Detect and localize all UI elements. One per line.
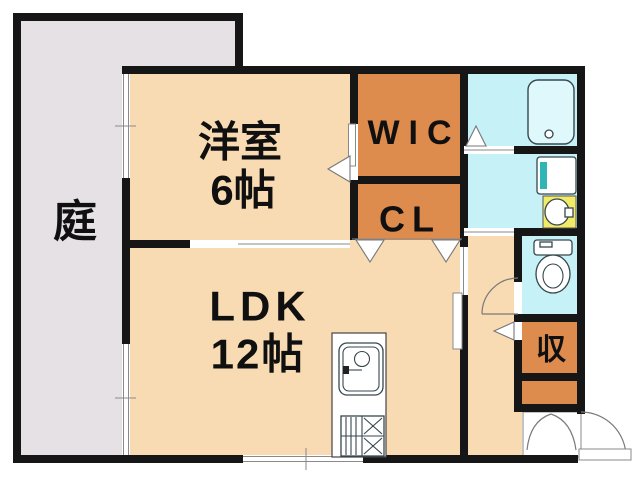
wall-bedroom-wic-upper — [350, 66, 358, 124]
wall-bedroom-ldk — [122, 240, 190, 248]
kitchen-sink-icon — [339, 343, 383, 395]
wall-washroom-bottom — [514, 228, 585, 236]
storage2-floor — [522, 381, 581, 404]
hallway — [464, 236, 522, 459]
ldk-size-label: 12帖 — [211, 331, 306, 378]
washbasin-icon — [543, 196, 576, 228]
ldk-label: LDK — [209, 283, 310, 330]
entrance-door-leaf — [579, 449, 631, 460]
bedroom-label: 洋室 — [198, 119, 282, 166]
wall-storage2-bottom — [514, 404, 585, 412]
wall-bathroom-bottom — [514, 146, 585, 154]
wall-outer-right — [577, 66, 585, 414]
wall-wic-washroom — [460, 66, 468, 247]
wic-label: WIC — [367, 114, 460, 152]
opening-storage — [514, 322, 522, 340]
toilet-icon — [534, 240, 572, 293]
garden-label: 庭 — [53, 198, 97, 247]
hallway-floor — [464, 236, 522, 459]
kitchen-counter — [332, 333, 386, 457]
wall-bedroom-cl-lower — [350, 180, 358, 240]
storage-label: 収 — [536, 334, 567, 367]
floor-plan-drawing: 庭 洋室 6帖 WIC CL LDK 12帖 収 — [0, 0, 636, 479]
wall-wic-cl-divider — [350, 176, 468, 184]
bedroom-size-label: 6帖 — [210, 167, 275, 214]
hall-sliding-door-panel — [453, 293, 462, 349]
wall-garden-right — [235, 13, 243, 74]
gas-stove-icon — [341, 416, 384, 456]
floor-plan: 庭 洋室 6帖 WIC CL LDK 12帖 収 — [0, 0, 636, 479]
wall-garden-top — [13, 13, 243, 21]
wall-toilet-left — [514, 236, 522, 282]
wall-toilet-bottom — [514, 314, 585, 322]
closet-label: CL — [379, 199, 441, 240]
bathtub-icon — [528, 80, 574, 144]
wall-outer-left — [13, 13, 21, 463]
washing-machine-pan-icon — [537, 157, 576, 194]
wall-storage-bottom — [514, 373, 585, 381]
wall-unit-left-mid — [122, 178, 130, 344]
opening-toilet — [514, 282, 522, 314]
